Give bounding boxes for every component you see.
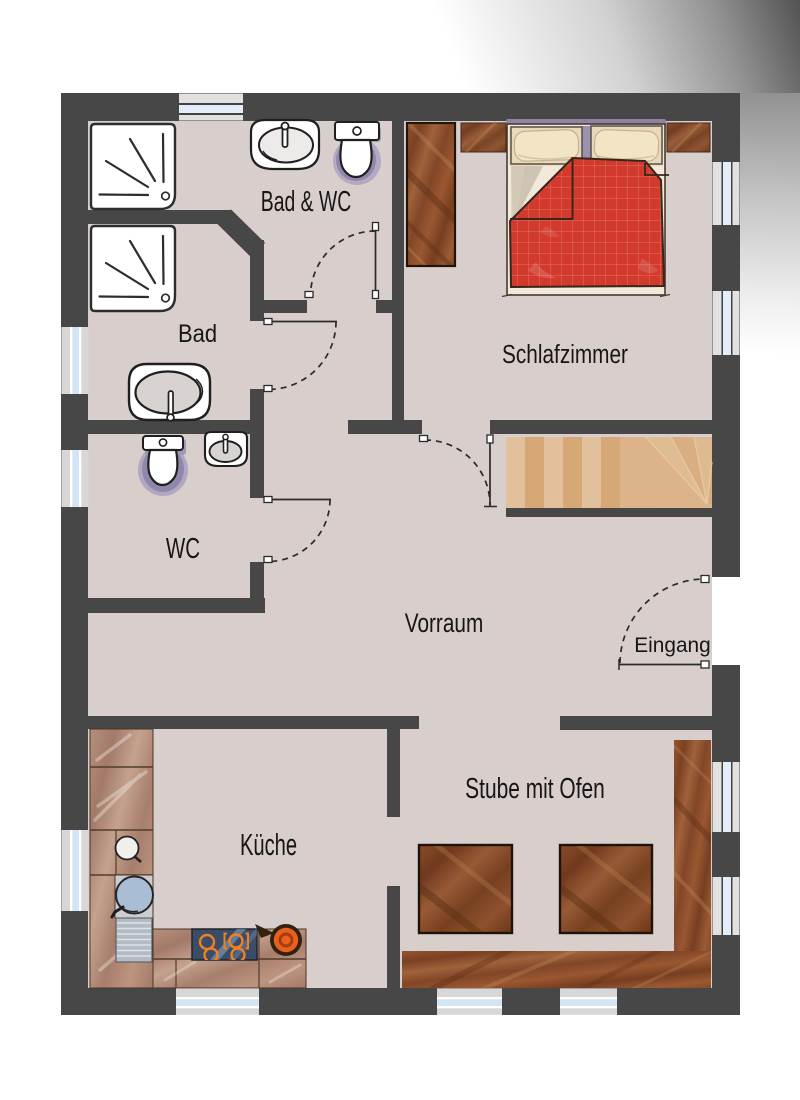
svg-text:Bad & WC: Bad & WC xyxy=(261,186,351,218)
svg-text:Stube mit Ofen: Stube mit Ofen xyxy=(465,773,605,805)
svg-text:Bad: Bad xyxy=(178,320,217,348)
svg-text:Eingang: Eingang xyxy=(634,634,710,657)
svg-text:WC: WC xyxy=(166,534,200,565)
svg-text:Vorraum: Vorraum xyxy=(405,608,484,638)
svg-text:Schlafzimmer: Schlafzimmer xyxy=(502,340,628,369)
svg-text:Küche: Küche xyxy=(240,829,297,862)
